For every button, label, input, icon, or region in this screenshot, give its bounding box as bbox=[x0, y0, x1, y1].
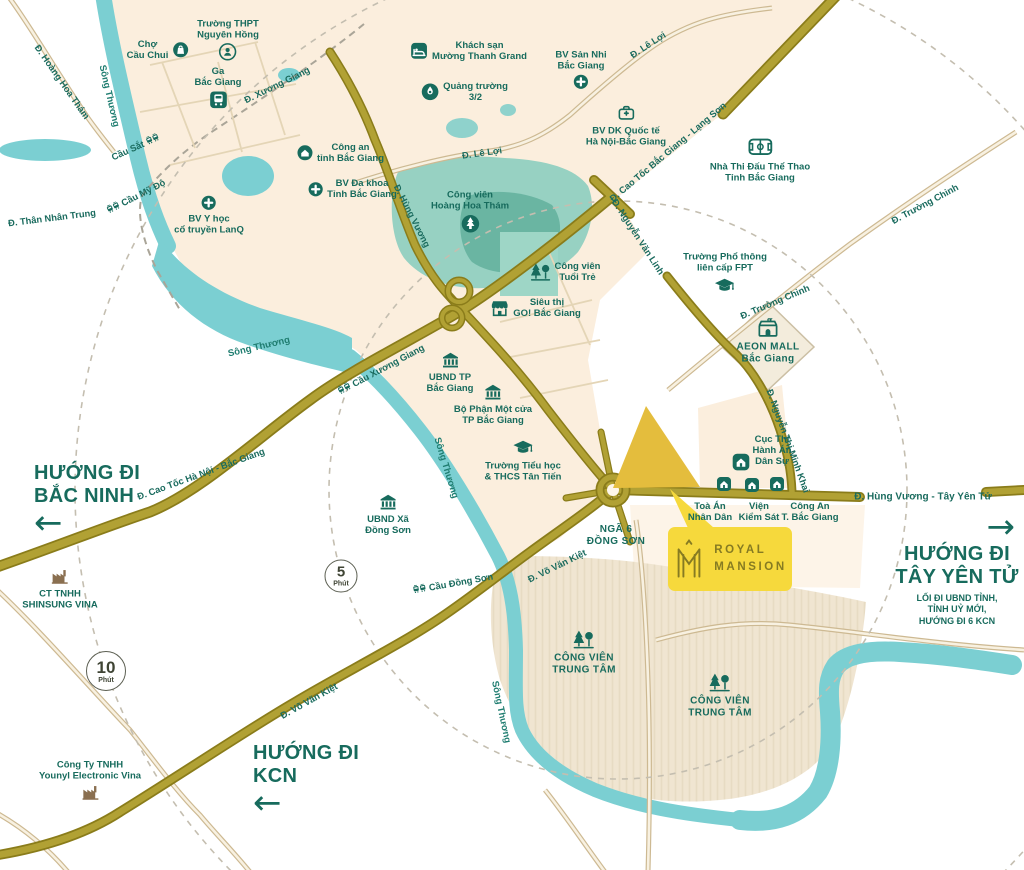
bridge-name: Cầu Xương Giang bbox=[350, 342, 425, 388]
poi-bo-phan-mot-cua: Bộ Phận Một cửaTP Bắc Giang bbox=[454, 382, 532, 426]
map-labels-layer: Trường THPTNguyên HồngChợCầu ChuiGaBắc G… bbox=[0, 0, 1024, 870]
poi-bv-da-khoa: BV Đa khoaTỉnh Bắc Giang bbox=[307, 178, 397, 200]
poi-ga-bac-giang: GaBắc Giang bbox=[195, 66, 242, 110]
poi-cong-vien-trung-tam-1: CÔNG VIÊNTRUNG TÂM bbox=[552, 628, 616, 677]
bridge-label-cau-my-do: Cầu Mỹ Độ bbox=[105, 176, 168, 217]
stadium-icon bbox=[748, 134, 773, 159]
direction-tay-yen-tu: → HƯỚNG ĐI TÂY YÊN TỬ LỐI ĐI UBND TỈNH, … bbox=[893, 512, 1021, 628]
train-pair-icon bbox=[144, 131, 161, 148]
cross-icon bbox=[201, 194, 218, 211]
poi-label: BV DK Quốc tếHà Nội-Bắc Giang bbox=[586, 125, 666, 147]
direction-text: TÂY YÊN TỬ bbox=[893, 566, 1021, 589]
poi-label: Trường Phổ thôngliên cấp FPT bbox=[683, 251, 767, 273]
poi-ubnd-xa-dong-son: UBND XãĐồng Sơn bbox=[365, 492, 411, 536]
direction-text: HƯỚNG ĐI bbox=[34, 462, 140, 485]
poi-sieu-thi-go: Siêu thịGO! Bắc Giang bbox=[489, 297, 581, 319]
poi-label: Công viênTuổi Trẻ bbox=[555, 261, 601, 283]
poi-label: CT TNHHSHINSUNG VINA bbox=[22, 588, 97, 610]
poi-cong-an-t-bac-giang: Công AnT. Bắc Giang bbox=[781, 501, 838, 523]
poi-label: NGÃ 6ĐỒNG SƠN bbox=[587, 524, 645, 548]
home-marker bbox=[732, 453, 751, 472]
poi-ct-shinsung-vina: CT TNHHSHINSUNG VINA bbox=[22, 567, 97, 610]
trees-icon bbox=[709, 671, 732, 694]
home-marker bbox=[744, 477, 760, 493]
bridge-name: Cầu Sắt bbox=[110, 139, 146, 162]
royal-mansion-callout: ROYAL MANSION bbox=[668, 527, 792, 591]
road-label-d-le-loi-1: Đ. Lê Lợi bbox=[461, 145, 502, 160]
poi-label: Trường THPTNguyên Hồng bbox=[197, 18, 259, 40]
road-label-d-vo-van-kiet-2: Đ. Võ Văn Kiệt bbox=[279, 681, 339, 721]
poi-label: Trường Tiểu học& THCS Tân Tiến bbox=[485, 460, 562, 482]
royal-mansion-name: ROYAL MANSION bbox=[714, 542, 787, 577]
poi-nga-6-dong-son: NGÃ 6ĐỒNG SƠN bbox=[587, 524, 645, 548]
poi-label: Công Ty TNHHYounyl Electronic Vina bbox=[39, 759, 141, 781]
bridge-label-cau-sat: Cầu Sắt bbox=[109, 131, 161, 163]
poi-label: CÔNG VIÊNTRUNG TÂM bbox=[552, 653, 616, 677]
train-pair-icon bbox=[105, 199, 122, 216]
grad-cap-icon bbox=[715, 276, 736, 297]
trees-icon bbox=[573, 628, 596, 651]
home-circle-icon bbox=[296, 144, 314, 162]
grad-cap-icon bbox=[512, 437, 533, 458]
home-marker bbox=[716, 476, 732, 492]
direction-text: HƯỚNG ĐI bbox=[893, 543, 1021, 566]
poi-label: GaBắc Giang bbox=[195, 66, 242, 88]
poi-truong-fpt: Trường Phổ thôngliên cấp FPT bbox=[683, 251, 767, 296]
poi-label: BV Đa khoaTỉnh Bắc Giang bbox=[327, 178, 397, 200]
poi-label: AEON MALLBắc Giang bbox=[736, 342, 799, 366]
road-label-d-xuong-giang: Đ. Xương Giang bbox=[243, 65, 312, 105]
water-label-song-thuong-2: Sông Thương bbox=[227, 335, 291, 360]
bac-giang-location-map: Trường THPTNguyên HồngChợCầu ChuiGaBắc G… bbox=[0, 0, 1024, 870]
badge-unit: Phút bbox=[333, 581, 349, 588]
cross-icon bbox=[307, 181, 324, 198]
bank-icon bbox=[483, 382, 503, 402]
road-label-d-hoang-hoa-tham: Đ. Hoàng Hoa Thám bbox=[33, 43, 92, 121]
road-label-d-nguyen-van-linh: Đ. Nguyễn Văn Linh bbox=[610, 197, 666, 276]
water-label-song-thuong-3: Sông Thương bbox=[431, 436, 460, 500]
poi-label: ViệnKiểm Sát bbox=[739, 501, 780, 523]
poi-label: Công AnT. Bắc Giang bbox=[781, 501, 838, 523]
poi-truong-tan-tien: Trường Tiểu học& THCS Tân Tiến bbox=[485, 437, 562, 482]
home-square-icon bbox=[744, 477, 760, 493]
medkit-icon bbox=[616, 102, 637, 123]
bank-icon bbox=[378, 492, 398, 512]
poi-cong-an-tinh: Công antỉnh Bắc Giang bbox=[296, 142, 384, 164]
poi-cho-cau-chui: ChợCầu Chui bbox=[127, 39, 190, 61]
water-label-song-thuong-4: Sông Thương bbox=[489, 680, 513, 744]
poi-label: Công antỉnh Bắc Giang bbox=[317, 142, 384, 164]
poi-label: Toà ÁnNhân Dân bbox=[688, 501, 732, 523]
royal-mansion-monogram-icon bbox=[673, 536, 705, 582]
badge-value: 10 bbox=[97, 659, 116, 676]
poi-bv-y-hoc: BV Y họccổ truyền LanQ bbox=[174, 194, 244, 235]
mall-icon bbox=[756, 317, 779, 340]
home-square-icon bbox=[716, 476, 732, 492]
poi-bv-san-nhi: BV Sản NhiBắc Giang bbox=[555, 49, 606, 90]
road-label-d-hung-vuong: Đ. Hùng Vương bbox=[392, 183, 432, 249]
poi-cong-vien-trung-tam-2: CÔNG VIÊNTRUNG TÂM bbox=[688, 671, 752, 720]
arrow-left-icon: ← bbox=[253, 788, 359, 819]
poi-nha-thi-dau: Nhà Thi Đấu Thể ThaoTỉnh Bắc Giang bbox=[710, 134, 810, 183]
poi-label: CÔNG VIÊNTRUNG TÂM bbox=[688, 696, 752, 720]
trees-icon bbox=[530, 261, 552, 283]
poi-vien-kiem-sat: ViệnKiểm Sát bbox=[739, 501, 780, 523]
badge-unit: Phút bbox=[98, 677, 114, 684]
direction-bac-ninh: HƯỚNG ĐI BẮC NINH ← bbox=[34, 462, 140, 539]
poi-label: UBND XãĐồng Sơn bbox=[365, 514, 411, 536]
cross-icon bbox=[572, 74, 589, 91]
badge-10-phut: 10 Phút bbox=[86, 651, 126, 691]
poi-label: Siêu thịGO! Bắc Giang bbox=[513, 297, 581, 319]
train-pair-icon bbox=[412, 581, 427, 596]
water-label-song-thuong-1: Sông Thương bbox=[97, 64, 122, 128]
store-icon bbox=[489, 298, 510, 319]
shop-bag-icon bbox=[171, 41, 189, 59]
factory-icon bbox=[80, 784, 99, 803]
poi-label: Quảng trường3/2 bbox=[443, 81, 508, 103]
road-label-d-cao-toc-ha-noi-bac-giang: Đ. Cao Tốc Hà Nội - Bắc Giang bbox=[136, 446, 266, 502]
road-label-d-vo-van-kiet-1: Đ. Võ Văn Kiệt bbox=[526, 548, 587, 585]
monument-icon bbox=[420, 82, 440, 102]
poi-label: Nhà Thi Đấu Thể ThaoTỉnh Bắc Giang bbox=[710, 161, 810, 183]
poi-label: Bộ Phận Một cửaTP Bắc Giang bbox=[454, 404, 532, 426]
direction-text: HƯỚNG ĐI bbox=[253, 742, 359, 765]
poi-khach-san-muong-thanh: Khách sạnMường Thanh Grand bbox=[409, 40, 527, 62]
factory-icon bbox=[50, 567, 69, 586]
poi-aeon-mall: AEON MALLBắc Giang bbox=[736, 317, 799, 366]
arrow-left-icon: ← bbox=[34, 508, 140, 539]
poi-label: ChợCầu Chui bbox=[127, 39, 169, 61]
road-label-d-hung-vuong-tay-yen-tu: Đ. Hùng Vương - Tây Yên Tử bbox=[854, 492, 992, 503]
poi-younyl-electronic-vina: Công Ty TNHHYounyl Electronic Vina bbox=[39, 759, 141, 802]
bridge-label-cau-xuong-giang: Cầu Xương Giang bbox=[336, 341, 427, 398]
badge-value: 5 bbox=[337, 565, 345, 580]
school-badge-icon bbox=[219, 43, 238, 62]
arrow-right-icon: → bbox=[893, 512, 1021, 543]
poi-toa-an-nhan-dan: Toà ÁnNhân Dân bbox=[688, 501, 732, 523]
poi-cong-vien-hoang-hoa-tham: Công viênHoàng Hoa Thám bbox=[431, 189, 509, 234]
home-square-icon bbox=[732, 453, 751, 472]
bank-icon bbox=[440, 350, 460, 370]
badge-5-phut: 5 Phút bbox=[325, 560, 358, 593]
hotel-icon bbox=[409, 41, 429, 61]
road-label-d-truong-chinh-1: Đ. Trường Chinh bbox=[890, 182, 960, 226]
bridge-name: Cầu Mỹ Độ bbox=[119, 177, 166, 208]
train-station-icon bbox=[208, 90, 228, 110]
bridge-name: Cầu Đồng Sơn bbox=[428, 571, 494, 592]
tree-blob-icon bbox=[460, 214, 481, 235]
poi-quang-truong-3-2: Quảng trường3/2 bbox=[420, 81, 508, 103]
home-marker bbox=[769, 476, 785, 492]
direction-kcn: HƯỚNG ĐI KCN ← bbox=[253, 742, 359, 819]
road-label-d-than-nhan-trung: Đ. Thân Nhân Trung bbox=[8, 208, 97, 229]
direction-note: LỐI ĐI UBND TỈNH, TỈNH UỶ MỚI, HƯỚNG ĐI … bbox=[893, 593, 1021, 628]
poi-label: Khách sạnMường Thanh Grand bbox=[432, 40, 527, 62]
poi-bv-dk-quoc-te: BV DK Quốc tếHà Nội-Bắc Giang bbox=[586, 102, 666, 147]
home-square-icon bbox=[769, 476, 785, 492]
poi-label: BV Y họccổ truyền LanQ bbox=[174, 213, 244, 235]
train-pair-icon bbox=[336, 380, 354, 398]
poi-label: BV Sản NhiBắc Giang bbox=[555, 49, 606, 71]
poi-label: Công viênHoàng Hoa Thám bbox=[431, 189, 509, 211]
road-label-d-le-loi-2: Đ. Lê Lợi bbox=[628, 30, 667, 60]
bridge-label-cau-dong-son: Cầu Đồng Sơn bbox=[412, 570, 494, 597]
poi-cong-vien-tuoi-tre: Công viênTuổi Trẻ bbox=[530, 261, 601, 283]
poi-truong-thpt-nguyen-hong: Trường THPTNguyên Hồng bbox=[197, 18, 259, 61]
